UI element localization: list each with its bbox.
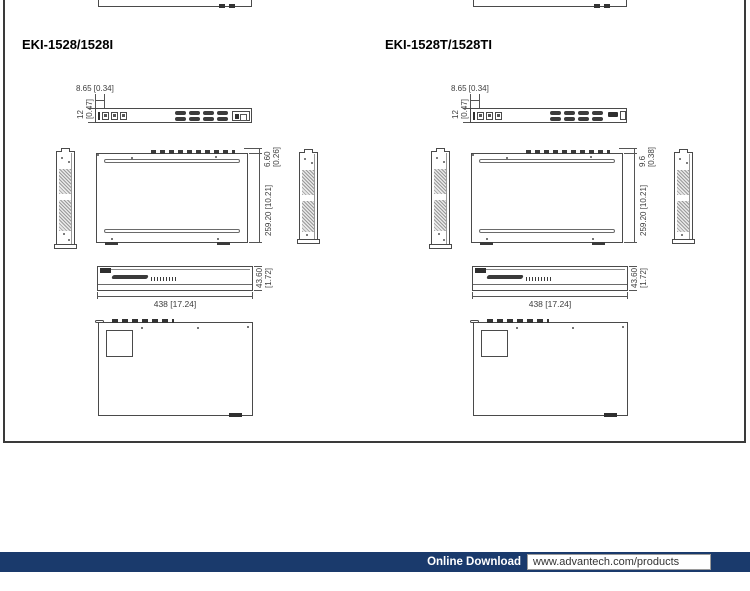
- connector-marks: [480, 242, 493, 245]
- bracket-tab: [61, 148, 70, 152]
- product-section-eki-1528t: EKI-1528T/1528TI 8.65 [0.34] 12 [0.47]: [375, 0, 747, 443]
- dim-line: [259, 148, 260, 243]
- bracket-flange: [689, 154, 690, 242]
- screw-holes: [679, 158, 681, 160]
- vent-hatch: [302, 170, 314, 195]
- side-view-right-drawing: [674, 152, 693, 244]
- db9-connector: [203, 111, 214, 115]
- db9-connector-grid: [550, 111, 603, 121]
- led-strip: [98, 112, 100, 120]
- db9-connector: [217, 111, 228, 115]
- vent-slots: [151, 277, 177, 281]
- dim-extension-line: [479, 94, 480, 108]
- dim-line: [634, 148, 635, 243]
- dim-inch: [1.72]: [640, 264, 649, 288]
- bracket-tab: [304, 149, 313, 153]
- front-view-drawing: [95, 108, 252, 123]
- terminal-block: [608, 112, 618, 117]
- db9-connector: [189, 111, 200, 115]
- dim-rotated-text: 6.60 [0.26]: [264, 145, 281, 167]
- dim-front-offset: 8.65 [0.34]: [76, 84, 114, 93]
- previous-figure-bottom-edge: [98, 0, 252, 7]
- dim-extension-line: [624, 242, 637, 243]
- previous-figure-bottom-edge: [473, 0, 627, 7]
- dim-extension-line: [88, 122, 95, 123]
- dim-extension-line: [627, 292, 628, 299]
- label-area: [481, 330, 508, 357]
- dim-extension-line: [249, 242, 262, 243]
- bracket-tab: [436, 148, 445, 152]
- db9-connector: [564, 111, 575, 115]
- vent-hatch: [677, 201, 689, 232]
- bracket-flange: [446, 153, 447, 247]
- dim-extension-line: [629, 290, 637, 291]
- vent-hatch: [302, 201, 314, 232]
- bottom-view-drawing: [473, 322, 628, 416]
- rj45-port: [486, 112, 493, 120]
- rj45-port: [477, 112, 484, 120]
- dim-extension-line: [463, 122, 470, 123]
- bracket-flange: [71, 153, 72, 247]
- dim-extension-line: [472, 292, 473, 299]
- dim-extension-line: [88, 108, 95, 109]
- bracket-foot: [297, 239, 320, 244]
- bracket-foot: [429, 244, 452, 249]
- connector-detail: [486, 275, 523, 279]
- db9-connector: [203, 117, 214, 121]
- side-view-right-drawing: [299, 152, 318, 244]
- power-inlet: [475, 268, 486, 273]
- vent-slot: [479, 159, 615, 163]
- dim-extension-line: [470, 94, 471, 108]
- product-title: EKI-1528/1528I: [22, 37, 113, 52]
- download-url: www.advantech.com/products: [528, 555, 710, 569]
- dim-rotated-text: 259.20 [10.21]: [265, 176, 274, 236]
- dim-inch: [0.38]: [648, 145, 657, 167]
- db9-connector: [175, 111, 186, 115]
- rear-view-drawing: [97, 266, 253, 291]
- db9-connector: [550, 111, 561, 115]
- db9-connector-grid: [175, 111, 228, 121]
- dim-line: [95, 100, 105, 101]
- dim-line: [472, 296, 628, 297]
- bracket-foot: [54, 244, 77, 249]
- screw-holes: [516, 327, 518, 329]
- rj45-port: [120, 112, 127, 120]
- db9-connector: [578, 111, 589, 115]
- connector-marks: [594, 4, 611, 8]
- panel-inner-line: [473, 284, 627, 285]
- connector-marks: [105, 242, 118, 245]
- vent-hatch: [677, 170, 689, 195]
- rj45-port: [111, 112, 118, 120]
- dim-inch: [0.26]: [273, 145, 282, 167]
- connector-marks: [112, 319, 174, 323]
- screw-holes: [97, 154, 99, 156]
- led-strip: [473, 112, 475, 120]
- label-area: [106, 330, 133, 357]
- dim-rotated-text: 43.60 [1.72]: [256, 264, 273, 288]
- ground-lug: [470, 320, 479, 323]
- connector-marks: [219, 4, 236, 8]
- dim-extension-line: [463, 108, 470, 109]
- vent-slots: [526, 277, 552, 281]
- screw-holes: [304, 158, 306, 160]
- side-view-left-drawing: [56, 151, 75, 249]
- dim-width: 438 [17.24]: [472, 299, 628, 309]
- vent-hatch: [434, 200, 446, 231]
- screw-holes: [141, 327, 143, 329]
- db9-connector: [189, 117, 200, 121]
- db9-connector: [564, 117, 575, 121]
- online-download-label: Online Download: [427, 552, 521, 572]
- dim-front-offset: 8.65 [0.34]: [451, 84, 489, 93]
- rj45-port: [495, 112, 502, 120]
- dim-extension-line: [249, 153, 262, 154]
- db9-connector: [175, 117, 186, 121]
- dim-rotated-text: 9.6 [0.38]: [639, 145, 656, 167]
- ground-lug: [95, 320, 104, 323]
- vent-hatch: [59, 200, 71, 231]
- dim-width: 438 [17.24]: [97, 299, 253, 309]
- connector-marks: [526, 150, 610, 154]
- vent-slot: [104, 229, 240, 233]
- rear-view-drawing: [472, 266, 628, 291]
- footer-bar: Online Download www.advantech.com/produc…: [0, 552, 750, 572]
- dim-extension-line: [624, 153, 637, 154]
- screw-holes: [61, 157, 63, 159]
- dim-rotated-text: 259.20 [10.21]: [640, 176, 649, 236]
- dim-inch: [1.72]: [265, 264, 274, 288]
- top-view-drawing: [471, 153, 623, 243]
- bracket-flange: [314, 154, 315, 242]
- screw-holes: [472, 154, 474, 156]
- rj45-port: [102, 112, 109, 120]
- top-view-drawing: [96, 153, 248, 243]
- connector-marks: [604, 413, 617, 417]
- dim-rotated-text: 43.60 [1.72]: [631, 264, 648, 288]
- connector-marks: [229, 413, 242, 417]
- vent-slot: [104, 159, 240, 163]
- vent-slot: [479, 229, 615, 233]
- db9-connector: [578, 117, 589, 121]
- bottom-view-drawing: [98, 322, 253, 416]
- datasheet-page: EKI-1528/1528I 8.65 [0.34] 12 [0.47]: [0, 0, 750, 591]
- vent-hatch: [434, 169, 446, 194]
- screw-holes: [436, 157, 438, 159]
- download-url-box: www.advantech.com/products: [527, 554, 711, 570]
- db9-connector: [217, 117, 228, 121]
- dim-line: [97, 296, 253, 297]
- db9-connector: [592, 117, 603, 121]
- panel-inner-line: [475, 269, 625, 270]
- power-switch: [620, 111, 626, 120]
- dim-extension-line: [104, 94, 105, 108]
- connector-marks: [151, 150, 235, 154]
- bracket-foot: [672, 239, 695, 244]
- dim-extension-line: [252, 292, 253, 299]
- power-inlet: [100, 268, 111, 273]
- vent-hatch: [59, 169, 71, 194]
- panel-inner-line: [98, 284, 252, 285]
- db9-connector: [592, 111, 603, 115]
- bracket-tab: [679, 149, 688, 153]
- dim-extension-line: [97, 292, 98, 299]
- dim-extension-line: [95, 94, 96, 108]
- side-view-left-drawing: [431, 151, 450, 249]
- connector-marks: [487, 319, 549, 323]
- product-section-eki-1528: EKI-1528/1528I 8.65 [0.34] 12 [0.47]: [0, 0, 372, 443]
- power-inlet: [232, 111, 250, 121]
- dim-extension-line: [254, 290, 262, 291]
- db9-connector: [550, 117, 561, 121]
- connector-detail: [111, 275, 148, 279]
- product-title: EKI-1528T/1528TI: [385, 37, 492, 52]
- dim-line: [470, 100, 480, 101]
- front-view-drawing: [470, 108, 627, 123]
- panel-inner-line: [100, 269, 250, 270]
